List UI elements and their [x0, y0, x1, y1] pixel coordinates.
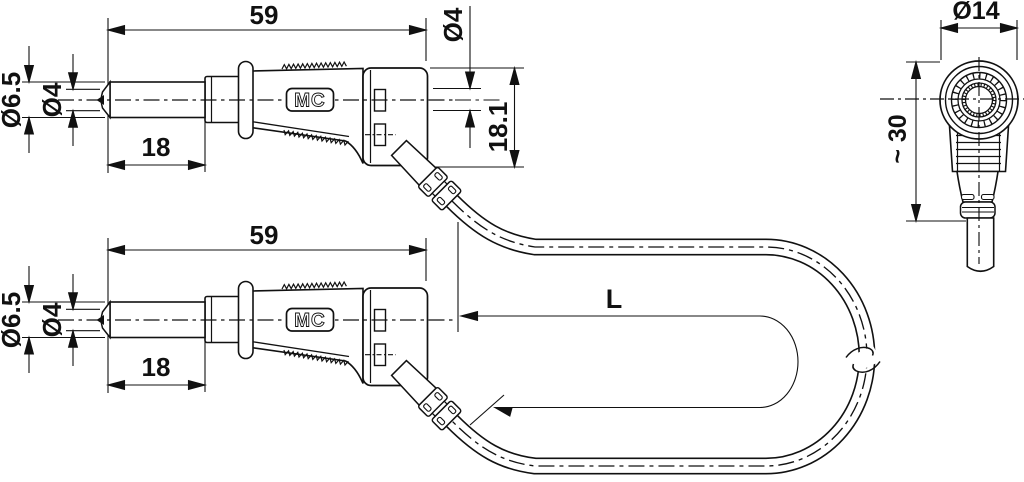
- label-angled-head-diameter: Ø14: [952, 0, 999, 25]
- label-top-socket-diameter: Ø4: [438, 7, 468, 42]
- label-bottom-overall-length: 59: [250, 220, 279, 250]
- label-cable-length: L: [606, 284, 623, 314]
- drawing-canvas: MC 59 18: [0, 0, 1024, 482]
- label-top-sleeve-diameter: Ø6.5: [0, 72, 26, 128]
- label-top-pin-length: 18: [142, 132, 171, 162]
- label-top-body-height: 18.1: [483, 102, 513, 153]
- label-bottom-pin-diameter: Ø4: [37, 302, 67, 337]
- label-top-overall-length: 59: [250, 0, 279, 30]
- mc-logo: MC: [287, 89, 334, 112]
- dim-angled-head-diameter: [941, 20, 1017, 60]
- label-angled-length: ~ 30: [884, 114, 912, 163]
- cable-loop: [452, 201, 881, 466]
- label-bottom-pin-length: 18: [142, 352, 171, 382]
- label-bottom-sleeve-diameter: Ø6.5: [0, 292, 26, 348]
- mc-logo-text: MC: [294, 91, 326, 112]
- angled-cable: [967, 218, 993, 271]
- straight-plug-bottom: [58, 282, 462, 431]
- label-top-pin-diameter: Ø4: [37, 82, 67, 117]
- straight-plug-top: MC: [58, 62, 462, 211]
- grip-serration-top: [282, 62, 346, 69]
- technical-drawing: MC 59 18: [0, 0, 1024, 482]
- plug-grip: [251, 69, 363, 164]
